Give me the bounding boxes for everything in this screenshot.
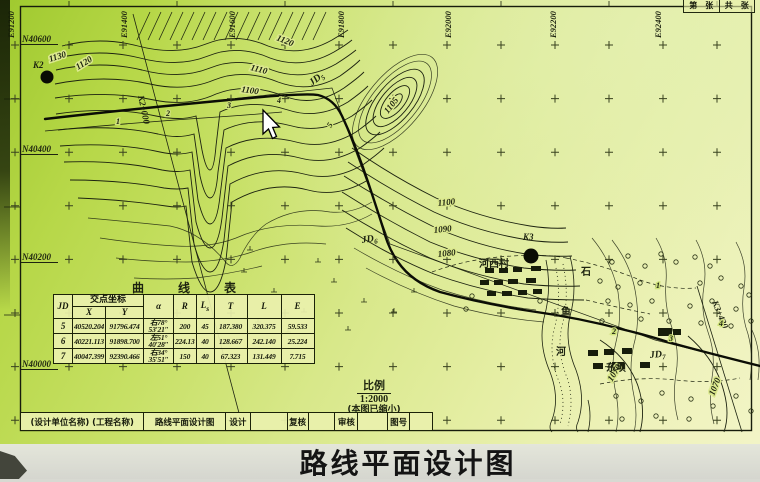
- tree-symbol: [598, 279, 602, 283]
- mouse-cursor: [263, 110, 280, 139]
- grid-label-northing: N40600: [21, 34, 51, 44]
- map-label: 1: [656, 281, 660, 290]
- building-symbol: [480, 280, 489, 285]
- building-symbol: [533, 289, 542, 294]
- curve-cell: 150: [174, 349, 196, 364]
- map-label: 4: [718, 319, 723, 328]
- tree-symbol: [606, 299, 610, 303]
- title-block: (设计单位名称) (工程名称)路线平面设计图设计复核审核图号: [20, 412, 433, 431]
- grid-label-easting: E91600: [227, 10, 237, 39]
- scale-value: 1:2000: [322, 394, 426, 405]
- map-label: 鱼: [561, 305, 571, 318]
- map-canvas: E91200E91400E91600E91800E92000E92200E924…: [0, 0, 760, 444]
- tree-symbol: [687, 417, 691, 421]
- col-jd: JD: [54, 295, 73, 319]
- map-label: 石: [580, 266, 591, 278]
- grid-label-northing: N40400: [21, 144, 51, 154]
- tree-symbol: [660, 391, 664, 395]
- tree-symbol: [734, 307, 738, 311]
- grid-label-easting: E92200: [548, 10, 558, 39]
- tree-symbol: [674, 260, 678, 264]
- river: [542, 256, 590, 432]
- title-block-cell: 设计: [225, 413, 250, 430]
- building-symbol: [508, 279, 518, 284]
- building-symbol: [518, 290, 527, 295]
- screenshot-stage: E91200E91400E91600E91800E92000E92200E924…: [0, 0, 760, 479]
- map-label: 1080: [437, 247, 456, 259]
- bottom-strip: 路线平面设计图: [0, 444, 760, 479]
- col-x: X: [73, 307, 106, 319]
- curve-cell: 右34°35′51″: [144, 349, 174, 364]
- map-label: 1130: [48, 49, 68, 64]
- sheet-number-box: 第 张 共 张: [683, 0, 755, 13]
- curve-cell: 200: [174, 319, 196, 334]
- map-label: JD6: [360, 233, 379, 248]
- map-label: JD5: [306, 70, 327, 90]
- scale-note: 比例 1:2000 (本图已缩小): [322, 376, 426, 415]
- map-label: 1: [116, 117, 120, 126]
- title-block-cell: (设计单位名称) (工程名称): [21, 413, 143, 430]
- col-y: Y: [106, 307, 144, 319]
- title-block-blank-cell: [357, 413, 387, 430]
- col-t: T: [214, 295, 247, 319]
- curve-cell: 45: [196, 319, 214, 334]
- building-symbol: [494, 280, 503, 285]
- curve-cell: 128.667: [214, 334, 247, 349]
- map-label: 1120: [74, 54, 95, 72]
- curve-table-row: 640221.11391898.700左51°40′28″224.1340128…: [54, 334, 315, 349]
- tree-symbol: [470, 294, 474, 298]
- tree-symbol: [628, 303, 632, 307]
- curve-table: JD 交点坐标 α R Ls T L E X Y 540520.20491796…: [53, 294, 315, 364]
- curve-cell: 7.715: [281, 349, 314, 364]
- map-label: 4: [276, 96, 281, 105]
- map-label: K2: [32, 60, 44, 70]
- map-label: JD7: [648, 349, 666, 363]
- tree-symbol: [699, 321, 703, 325]
- tree-symbol: [659, 252, 663, 256]
- curve-table-body: 540520.20491796.474右78°53′21″20045187.38…: [54, 319, 315, 364]
- map-label: 1100: [241, 84, 260, 96]
- grid-label-easting: E92400: [653, 10, 663, 39]
- curve-cell: 242.140: [247, 334, 281, 349]
- curve-cell: 左51°40′28″: [144, 334, 174, 349]
- building-symbol: [673, 329, 681, 335]
- curve-cell: 91898.700: [106, 334, 144, 349]
- tree-symbol: [639, 317, 643, 321]
- tree-symbol: [643, 264, 647, 268]
- tree-symbol: [688, 304, 692, 308]
- tree-symbol: [689, 397, 693, 401]
- photo-edge-shade: [0, 0, 10, 310]
- building-symbol: [604, 349, 614, 355]
- tree-symbol: [610, 260, 614, 264]
- col-l: L: [247, 295, 281, 319]
- curve-cell: 92390.466: [106, 349, 144, 364]
- building-symbol: [640, 362, 650, 368]
- tree-symbol: [654, 414, 658, 418]
- curve-cell: 131.449: [247, 349, 281, 364]
- curve-cell: 187.380: [214, 319, 247, 334]
- curve-cell: 59.533: [281, 319, 314, 334]
- map-label: 1110: [250, 62, 269, 76]
- page-title: 路线平面设计图: [0, 442, 760, 482]
- curve-cell: 40520.204: [73, 319, 106, 334]
- curve-cell: 6: [54, 334, 73, 349]
- tree-symbol: [693, 255, 697, 259]
- curve-cell: 91796.474: [106, 319, 144, 334]
- col-alpha: α: [144, 295, 174, 319]
- sheet-no-label: 第 张: [684, 0, 719, 12]
- curve-cell: 40: [196, 334, 214, 349]
- curve-cell: 40221.113: [73, 334, 106, 349]
- tree-symbol: [747, 293, 751, 297]
- curve-cell: 7: [54, 349, 73, 364]
- curve-cell: 40047.399: [73, 349, 106, 364]
- contour-lines: [55, 30, 384, 292]
- tree-symbol: [734, 394, 738, 398]
- grid-label-easting: E92000: [443, 10, 453, 39]
- curve-cell: 67.323: [214, 349, 247, 364]
- grid-label-northing: N40200: [21, 252, 51, 262]
- col-r: R: [174, 295, 196, 319]
- building-symbol: [593, 363, 603, 369]
- map-label: 3: [668, 334, 673, 343]
- grid-label-easting: E91800: [336, 10, 346, 39]
- tree-symbol: [719, 276, 723, 280]
- map-label: 2: [165, 109, 170, 118]
- slope-contours: [342, 148, 584, 322]
- map-label: 1100: [437, 196, 456, 208]
- col-coord: 交点坐标: [73, 295, 144, 307]
- grid-label-easting: E91400: [119, 10, 129, 39]
- building-symbol: [531, 266, 541, 271]
- building-symbol: [588, 350, 598, 356]
- building-symbol: [526, 278, 536, 283]
- grid-label-northing: N40000: [21, 359, 51, 369]
- curve-table-row: 540520.20491796.474右78°53′21″20045187.38…: [54, 319, 315, 334]
- map-label: 1090: [433, 223, 452, 235]
- col-e: E: [281, 295, 314, 319]
- title-block-cell: 图号: [387, 413, 409, 430]
- map-label: 河西村: [479, 257, 509, 270]
- tree-symbol: [620, 417, 624, 421]
- sheet-total-label: 共 张: [719, 0, 755, 12]
- building-symbol: [622, 348, 632, 354]
- building-symbol: [502, 291, 512, 296]
- title-block-blank-cell: [409, 413, 432, 430]
- tree-symbol: [626, 254, 630, 258]
- curve-cell: 25.224: [281, 334, 314, 349]
- curve-cell: 40: [196, 349, 214, 364]
- scale-label: 比例: [357, 377, 391, 394]
- title-block-cell: 审核: [334, 413, 357, 430]
- col-ls: Ls: [196, 295, 214, 319]
- benchmark-dot: [41, 71, 54, 84]
- tree-symbol: [708, 264, 712, 268]
- tree-symbol: [739, 284, 743, 288]
- tree-symbol: [538, 299, 542, 303]
- building-symbol: [487, 291, 496, 296]
- tree-symbol: [711, 404, 715, 408]
- tree-symbol: [616, 285, 620, 289]
- title-block-cell: 复核: [287, 413, 308, 430]
- curve-cell: 右78°53′21″: [144, 319, 174, 334]
- tree-symbol: [638, 281, 642, 285]
- benchmark-dot: [524, 249, 539, 264]
- curve-cell: 5: [54, 319, 73, 334]
- map-label: 河: [556, 346, 566, 358]
- tree-symbol: [698, 281, 702, 285]
- curve-table-row: 740047.39992390.466右34°35′51″1504067.323…: [54, 349, 315, 364]
- title-block-cell: 路线平面设计图: [143, 413, 225, 430]
- map-label: 1070: [707, 376, 723, 397]
- building-symbol: [513, 267, 522, 272]
- map-label: 3: [226, 101, 231, 110]
- tree-symbol: [650, 299, 654, 303]
- map-label: 东坝: [606, 361, 626, 374]
- map-label: 2: [611, 327, 616, 336]
- map-label: 5: [325, 121, 335, 129]
- curve-cell: 224.13: [174, 334, 196, 349]
- title-block-blank-cell: [250, 413, 287, 430]
- curve-cell: 320.375: [247, 319, 281, 334]
- title-block-blank-cell: [308, 413, 335, 430]
- map-label: K3: [522, 232, 534, 242]
